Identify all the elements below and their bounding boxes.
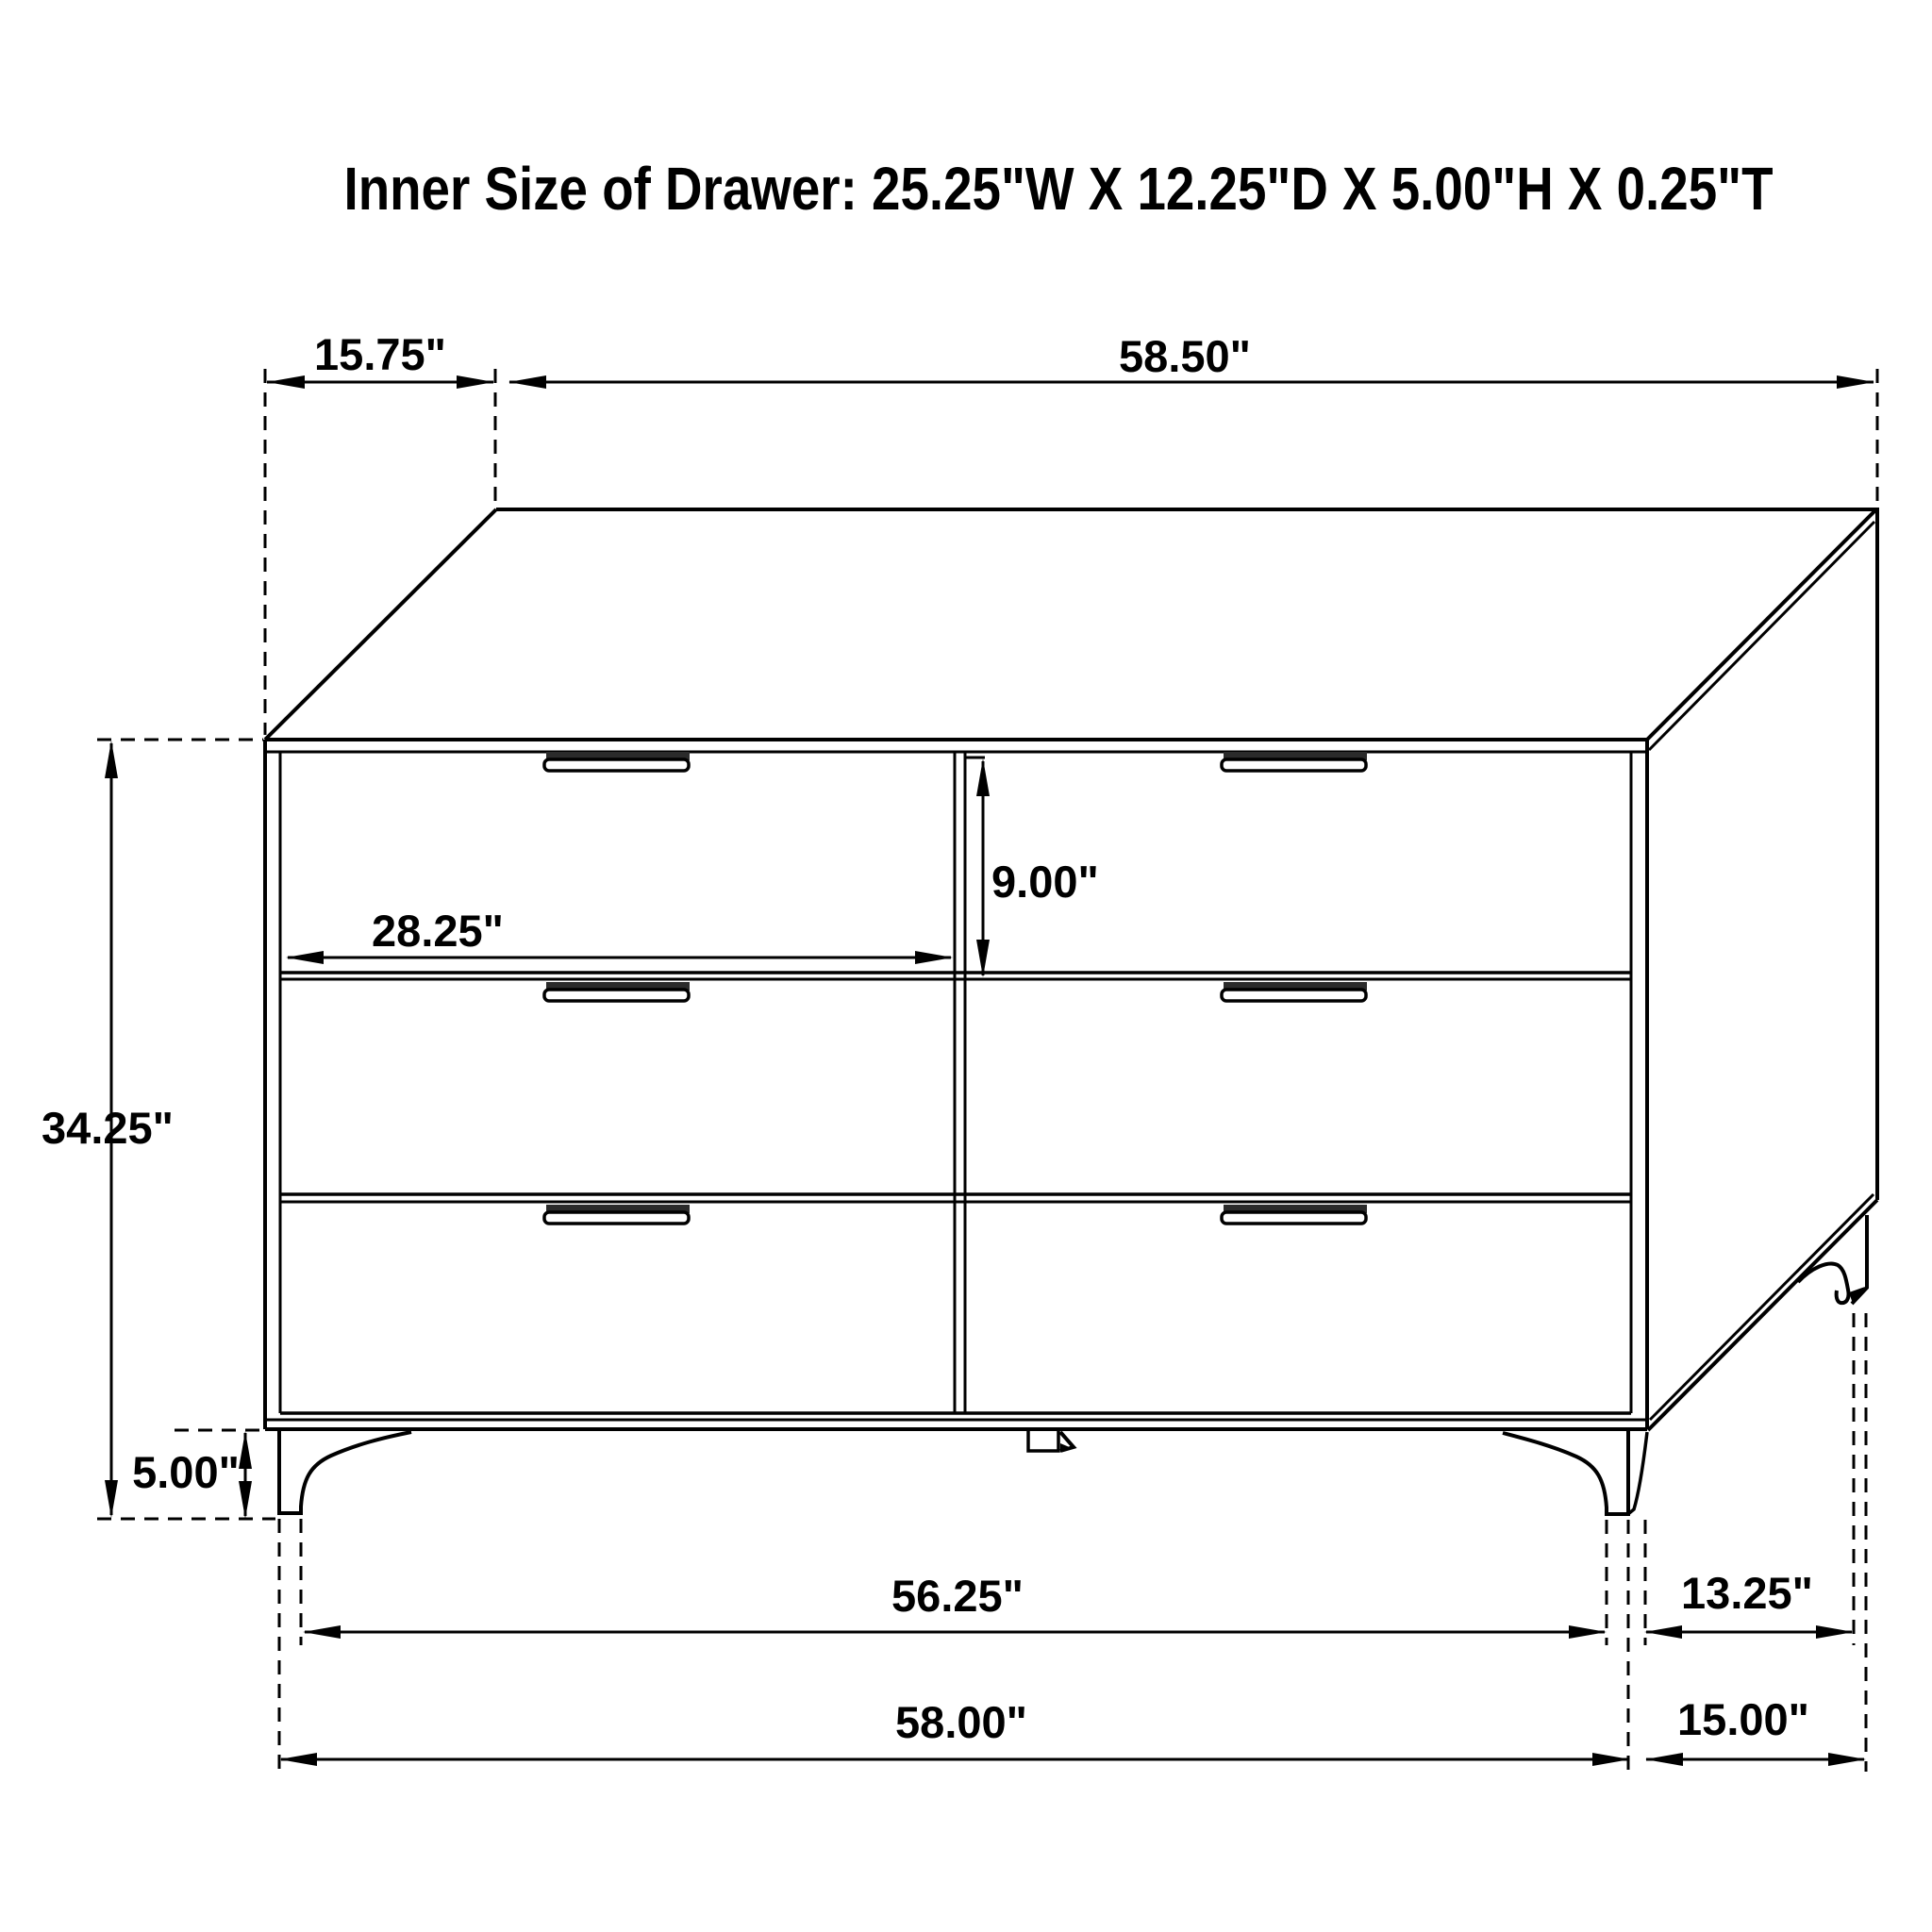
svg-text:56.25": 56.25" [891,1571,1024,1621]
svg-text:5.00": 5.00" [132,1447,240,1497]
svg-text:34.25": 34.25" [42,1103,174,1153]
svg-text:15.75": 15.75" [314,329,446,379]
svg-text:58.50": 58.50" [1119,331,1251,381]
svg-text:Inner Size of Drawer: 25.25"W: Inner Size of Drawer: 25.25"W X 12.25"D … [344,155,1774,223]
svg-text:13.25": 13.25" [1681,1568,1813,1618]
svg-text:9.00": 9.00" [991,857,1099,907]
svg-text:58.00": 58.00" [895,1697,1027,1747]
svg-text:15.00": 15.00" [1677,1694,1809,1744]
svg-text:28.25": 28.25" [372,906,504,956]
